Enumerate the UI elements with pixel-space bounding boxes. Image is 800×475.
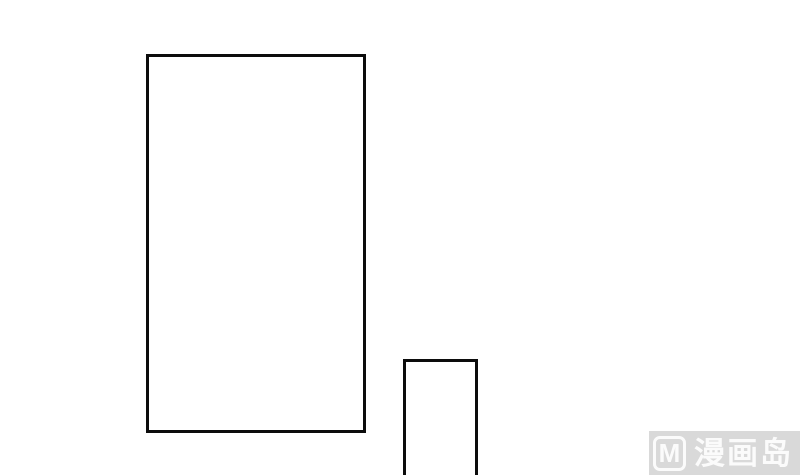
watermark-brand-text: 漫画岛 [694,438,793,469]
watermark-band: M 漫画岛 [649,431,800,475]
comic-panel-large [146,54,366,433]
comic-panel-small [403,359,478,475]
manhuadao-logo-icon: M [653,436,686,471]
comic-page: M 漫画岛 [0,0,800,475]
watermark-logo-letter: M [659,440,681,466]
